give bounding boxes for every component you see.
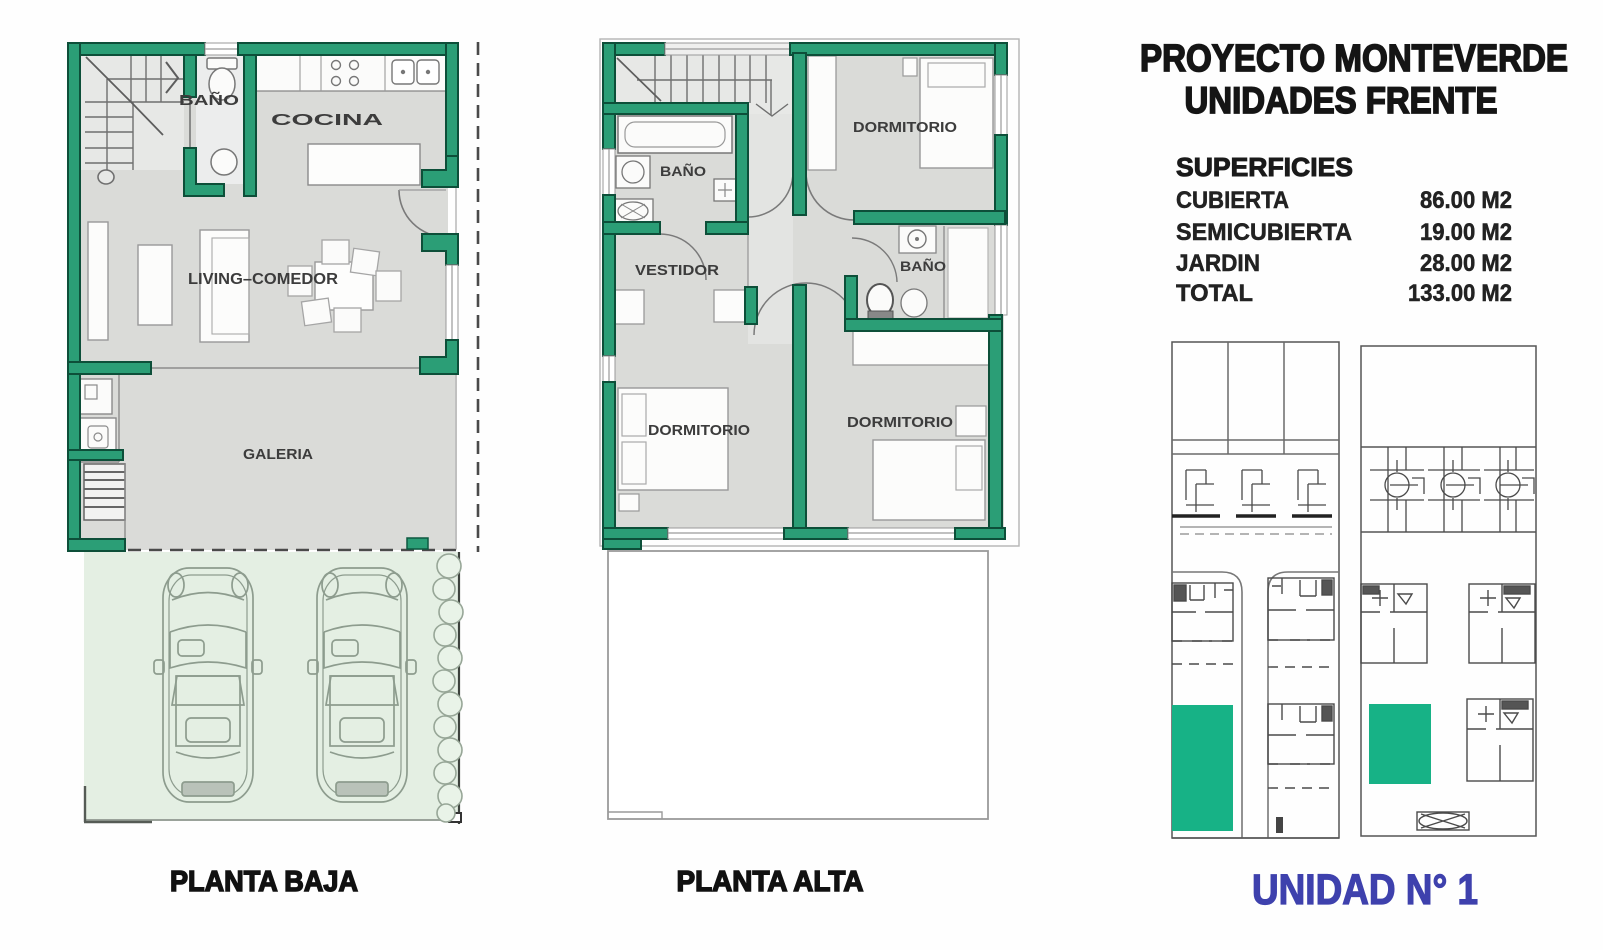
svg-text:19.00 M2: 19.00 M2 bbox=[1420, 219, 1512, 246]
svg-text:BAÑO: BAÑO bbox=[900, 257, 946, 274]
svg-text:PROYECTO MONTEVERDE: PROYECTO MONTEVERDE bbox=[1140, 38, 1568, 80]
svg-text:SEMICUBIERTA: SEMICUBIERTA bbox=[1176, 219, 1352, 246]
svg-text:SUPERFICIES: SUPERFICIES bbox=[1176, 152, 1353, 182]
svg-text:BAÑO: BAÑO bbox=[660, 162, 706, 179]
svg-text:LIVING–COMEDOR: LIVING–COMEDOR bbox=[188, 271, 338, 288]
svg-text:BAÑO: BAÑO bbox=[179, 91, 239, 109]
svg-text:VESTIDOR: VESTIDOR bbox=[635, 262, 719, 279]
svg-text:DORMITORIO: DORMITORIO bbox=[853, 120, 957, 136]
svg-text:86.00 M2: 86.00 M2 bbox=[1420, 187, 1512, 214]
svg-text:UNIDAD N° 1: UNIDAD N° 1 bbox=[1252, 866, 1478, 914]
svg-text:COCINA: COCINA bbox=[271, 112, 383, 129]
svg-text:CUBIERTA: CUBIERTA bbox=[1176, 187, 1289, 214]
svg-text:DORMITORIO: DORMITORIO bbox=[847, 414, 953, 431]
svg-text:PLANTA BAJA: PLANTA BAJA bbox=[170, 866, 358, 898]
svg-text:UNIDADES FRENTE: UNIDADES FRENTE bbox=[1185, 80, 1498, 121]
svg-text:DORMITORIO: DORMITORIO bbox=[648, 422, 750, 439]
svg-text:JARDIN: JARDIN bbox=[1176, 250, 1260, 277]
svg-text:TOTAL: TOTAL bbox=[1176, 280, 1253, 307]
svg-text:PLANTA ALTA: PLANTA ALTA bbox=[677, 866, 864, 898]
svg-text:28.00 M2: 28.00 M2 bbox=[1420, 250, 1512, 277]
svg-text:133.00 M2: 133.00 M2 bbox=[1408, 280, 1512, 307]
svg-text:GALERIA: GALERIA bbox=[243, 447, 314, 463]
